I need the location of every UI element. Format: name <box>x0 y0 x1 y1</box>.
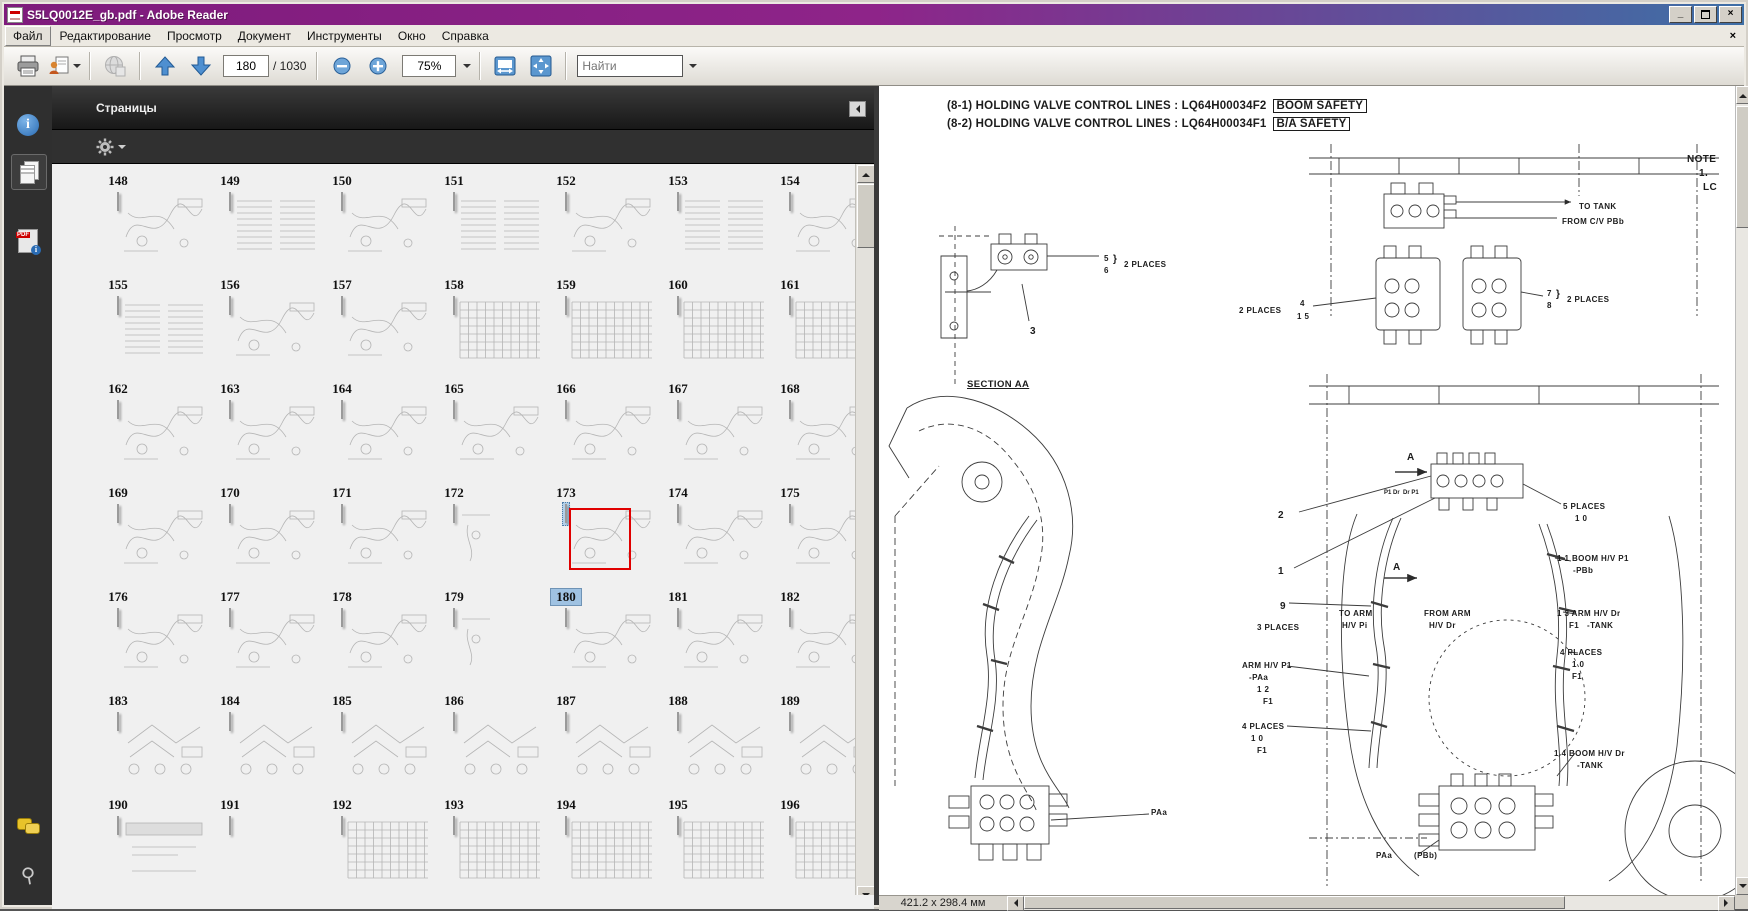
down-arrow-icon <box>190 55 212 77</box>
panel-scroll-up-button[interactable] <box>857 165 875 183</box>
menu-item-1[interactable]: Редактирование <box>53 27 158 45</box>
page-thumbnail[interactable] <box>450 710 458 734</box>
menu-bar-items: ФайлРедактированиеПросмотрДокументИнстру… <box>4 26 497 46</box>
pages-panel: Страницы 1481491501511521531541551561571… <box>52 86 874 905</box>
collaborate-button-disabled[interactable] <box>98 50 132 82</box>
page-thumbnail-image <box>677 816 679 835</box>
search-dropdown-button[interactable] <box>683 56 699 76</box>
page-thumb-label-182[interactable]: 182 <box>775 589 805 605</box>
up-arrow-icon <box>154 55 176 77</box>
diagram-label-49: (PBb) <box>1414 851 1437 860</box>
page-thumbnail[interactable] <box>674 190 682 214</box>
page-thumbnail[interactable] <box>450 606 458 630</box>
page-thumb-label-188[interactable]: 188 <box>663 693 693 709</box>
thumb-row-6 <box>62 814 856 900</box>
page-thumbnail[interactable] <box>450 398 458 422</box>
page-thumbnail-image <box>677 712 679 731</box>
menu-item-6[interactable]: Справка <box>435 27 496 45</box>
page-thumb-label-180[interactable]: 180 <box>550 588 582 606</box>
page-thumbnail-image <box>789 816 791 835</box>
diagram-label-19: P1 Dr Dr P1 <box>1384 490 1419 497</box>
diagram-label-23: 1 <box>1278 566 1284 578</box>
page-thumb-label-171[interactable]: 171 <box>327 485 357 501</box>
page-thumb-label-169[interactable]: 169 <box>103 485 133 501</box>
page-thumbnail-image <box>789 504 791 523</box>
share-document-icon <box>48 55 70 77</box>
diagram-label-34: F1 -TANK <box>1569 621 1613 630</box>
page-thumb-label-148[interactable]: 148 <box>103 173 133 189</box>
page-thumbnail-image <box>677 608 679 627</box>
page-thumb-label-149[interactable]: 149 <box>215 173 245 189</box>
page-thumbnail[interactable] <box>674 814 682 838</box>
page-thumbnail-image <box>117 296 119 315</box>
page-thumbnail-image <box>117 816 119 835</box>
zoom-out-icon <box>332 56 352 76</box>
page-thumb-label-159[interactable]: 159 <box>551 277 581 293</box>
page-thumbnail-image <box>565 400 567 419</box>
diagram-label-44: F1 <box>1257 746 1267 755</box>
page-thumb-label-170[interactable]: 170 <box>215 485 245 501</box>
doc-hscrollbar-thumb[interactable] <box>1024 896 1565 909</box>
menu-item-3[interactable]: Документ <box>231 27 298 45</box>
page-thumbnail[interactable] <box>450 294 458 318</box>
page-thumbnail[interactable] <box>226 294 234 318</box>
page-thumbnail[interactable] <box>338 502 346 526</box>
page-thumbnail[interactable] <box>562 814 570 838</box>
page-thumbnail[interactable] <box>114 398 122 422</box>
diagram-label-2: LC <box>1703 182 1717 194</box>
page-thumbnail-image <box>229 712 231 731</box>
zoom-out-button[interactable] <box>325 50 359 82</box>
zoom-level-input[interactable]: 75% <box>402 55 456 77</box>
page-thumbnail[interactable] <box>338 294 346 318</box>
page-thumbnail-image <box>677 192 679 211</box>
page-thumbnail-image <box>341 504 343 523</box>
diagram-label-5: 5 <box>1104 254 1109 263</box>
page-thumbnail[interactable] <box>226 814 234 838</box>
page-thumbnail[interactable] <box>674 710 682 734</box>
page-thumbnail[interactable] <box>786 710 794 734</box>
diagram-label-18: A <box>1407 452 1415 464</box>
page-thumb-label-181[interactable]: 181 <box>663 589 693 605</box>
thumb-label-row-0: 148149150151152153154 <box>62 172 856 190</box>
page-thumb-label-178[interactable]: 178 <box>327 589 357 605</box>
page-thumb-label-193[interactable]: 193 <box>439 797 469 813</box>
attachments-button[interactable]: ⚲ <box>11 858 45 892</box>
doc-scrollbar-thumb[interactable] <box>1736 106 1748 228</box>
diagram-label-30: H/V Pi <box>1342 621 1368 630</box>
page-thumb-label-163[interactable]: 163 <box>215 381 245 397</box>
thumb-row-2 <box>62 398 856 484</box>
panel-scrollbar[interactable] <box>855 164 874 905</box>
page-thumbnail[interactable] <box>562 710 570 734</box>
comments-icon <box>17 818 39 836</box>
page-thumb-label-157[interactable]: 157 <box>327 277 357 293</box>
pages-panel-title: Страницы <box>96 101 157 115</box>
info-icon: i <box>17 114 39 136</box>
page-thumb-label-194[interactable]: 194 <box>551 797 581 813</box>
page-thumbnail[interactable] <box>562 294 570 318</box>
panel-scrollbar-thumb[interactable] <box>857 184 875 248</box>
page-thumbnail-selected[interactable] <box>562 502 570 526</box>
search-input[interactable] <box>577 55 683 77</box>
diagram-label-9: 7 <box>1547 289 1552 298</box>
doc-scroll-right-button[interactable] <box>1718 896 1735 911</box>
page-thumbnail[interactable] <box>338 190 346 214</box>
thumb-row-4 <box>62 606 856 692</box>
comments-panel-button[interactable] <box>11 810 45 844</box>
doc-scroll-up-button[interactable] <box>1736 86 1748 104</box>
page-thumb-label-151[interactable]: 151 <box>439 173 469 189</box>
thumb-label-row-3: 169170171172173174175 <box>62 484 856 502</box>
menu-item-4[interactable]: Инструменты <box>300 27 389 45</box>
page-thumb-label-152[interactable]: 152 <box>551 173 581 189</box>
page-thumbnail-image <box>453 192 455 211</box>
page-thumbnail-image <box>565 296 567 315</box>
fit-width-button[interactable] <box>488 50 522 82</box>
thumb-row-0 <box>62 190 856 276</box>
page-thumb-label-189[interactable]: 189 <box>775 693 805 709</box>
previous-page-button[interactable] <box>148 50 182 82</box>
diagram-label-17: SECTION AA <box>967 380 1029 391</box>
minimize-button[interactable]: _ <box>1669 6 1692 23</box>
diagram-label-35: 4 PLACES <box>1560 648 1602 657</box>
page-thumbnail-image <box>789 608 791 627</box>
page-thumb-label-176[interactable]: 176 <box>103 589 133 605</box>
page-thumbnail[interactable] <box>226 190 234 214</box>
page-size-label: 421.2 x 298.4 мм <box>879 897 1007 909</box>
page-thumbnail-image <box>565 712 567 731</box>
diagram-label-42: 4 PLACES <box>1242 722 1284 731</box>
panel-bottom-strip <box>52 895 874 909</box>
page-thumb-label-164[interactable]: 164 <box>327 381 357 397</box>
collapse-panel-button[interactable] <box>849 101 866 117</box>
fit-width-icon <box>493 54 517 78</box>
page-thumb-label-173[interactable]: 173 <box>551 485 581 501</box>
page-thumbnail-image <box>341 296 343 315</box>
page-thumbnail-image <box>117 712 119 731</box>
page-thumbnail-image <box>789 192 791 211</box>
page-thumbnail[interactable] <box>226 606 234 630</box>
thumb-row-1 <box>62 294 856 380</box>
panel-options-dropdown-arrow <box>118 145 126 153</box>
page-thumb-label-160[interactable]: 160 <box>663 277 693 293</box>
pages-panel-button[interactable] <box>11 154 47 190</box>
page-thumbnail[interactable] <box>226 710 234 734</box>
how-to-button[interactable]: i <box>11 108 45 142</box>
page-thumbnail-image <box>341 192 343 211</box>
diagram-label-45: 1 4 BOOM H/V Dr <box>1554 749 1625 758</box>
navigation-rail: i ⚲ <box>4 86 53 905</box>
window-title: S5LQ0012E_gb.pdf - Adobe Reader <box>27 8 1669 22</box>
page-thumb-label-186[interactable]: 186 <box>439 693 469 709</box>
page-thumbnail-image <box>229 296 231 315</box>
adobe-reader-app-icon <box>7 7 23 23</box>
page-thumbnail[interactable] <box>562 398 570 422</box>
document-vertical-scrollbar[interactable] <box>1735 86 1748 895</box>
page-thumbnail[interactable] <box>114 294 122 318</box>
page-thumbnail-image <box>229 504 231 523</box>
diagram-label-29: TO ARM <box>1339 609 1373 618</box>
page-thumbnail[interactable] <box>338 710 346 734</box>
page-thumb-label-174[interactable]: 174 <box>663 485 693 501</box>
printer-icon <box>16 55 40 77</box>
diagram-label-33: 1 3 ARM H/V Dr <box>1557 609 1621 618</box>
diagram-label-47: PAa <box>1151 808 1167 817</box>
title-bar: S5LQ0012E_gb.pdf - Adobe Reader _ × <box>4 4 1744 25</box>
page-thumbnail-image <box>453 608 455 627</box>
zoom-in-icon <box>368 56 388 76</box>
page-thumbnail-image <box>229 192 231 211</box>
page-thumbnail-image <box>117 400 119 419</box>
page-thumbnail[interactable] <box>674 502 682 526</box>
page-thumbnail[interactable] <box>786 294 794 318</box>
globe-icon <box>103 54 127 78</box>
thumb-row-3 <box>62 502 856 588</box>
page-thumbnail-image <box>341 400 343 419</box>
thumb-label-row-4: 176177178179180181182 <box>62 588 856 606</box>
page-thumbnail-image <box>229 400 231 419</box>
diagram-label-41: F1 <box>1263 697 1273 706</box>
menu-item-2[interactable]: Просмотр <box>160 27 229 45</box>
page-thumb-label-191[interactable]: 191 <box>215 797 245 813</box>
diagram-label-14: 4 <box>1300 299 1305 308</box>
page-thumbnail-image <box>229 816 231 835</box>
page-thumb-label-161[interactable]: 161 <box>775 277 805 293</box>
page-thumbnail-image <box>453 712 455 731</box>
page-thumbnail[interactable] <box>450 814 458 838</box>
page-thumbnail[interactable] <box>114 502 122 526</box>
diagram-label-0: NOTE <box>1687 154 1716 166</box>
page-thumb-label-155[interactable]: 155 <box>103 277 133 293</box>
diagram-label-46: -TANK <box>1577 761 1603 770</box>
page-thumbnail-image <box>789 400 791 419</box>
menu-item-0[interactable]: Файл <box>5 26 51 46</box>
page-thumb-label-167[interactable]: 167 <box>663 381 693 397</box>
page-thumbnail-image <box>341 712 343 731</box>
page-thumb-label-185[interactable]: 185 <box>327 693 357 709</box>
page-thumbnail-image <box>789 712 791 731</box>
page-thumbnail[interactable] <box>674 294 682 318</box>
diagram-label-38: ARM H/V P1 <box>1242 661 1292 670</box>
menu-bar: ФайлРедактированиеПросмотрДокументИнстру… <box>4 25 1744 47</box>
page-thumb-label-172[interactable]: 172 <box>439 485 469 501</box>
document-pane[interactable]: (8-1) HOLDING VALVE CONTROL LINES : LQ64… <box>879 86 1735 895</box>
zoom-in-button[interactable] <box>361 50 395 82</box>
page-thumbnail-image <box>453 504 455 523</box>
page-thumbnail[interactable] <box>562 606 570 630</box>
thumb-row-5 <box>62 710 856 796</box>
diagram-label-7: } <box>1113 254 1117 266</box>
page-thumbnail[interactable] <box>114 190 122 214</box>
page-thumbnail[interactable] <box>450 190 458 214</box>
page-thumbnail-image <box>117 192 119 211</box>
fit-page-icon <box>529 54 553 78</box>
page-thumb-label-184[interactable]: 184 <box>215 693 245 709</box>
page-thumbnail[interactable] <box>786 606 794 630</box>
page-thumbnail[interactable] <box>338 398 346 422</box>
diagram-label-28: 3 PLACES <box>1257 623 1299 632</box>
scrollbar-corner <box>1735 895 1748 909</box>
thumb-label-row-6: 190191192193194195196 <box>62 796 856 814</box>
page-thumb-label-156[interactable]: 156 <box>215 277 245 293</box>
page-thumbnail[interactable] <box>450 502 458 526</box>
document-status-bar: 421.2 x 298.4 мм <box>879 895 1735 910</box>
paperclip-icon: ⚲ <box>19 862 38 888</box>
thumb-label-row-2: 162163164165166167168 <box>62 380 856 398</box>
diagram-label-48: PAa <box>1376 851 1392 860</box>
diagram-label-24: A <box>1393 562 1401 574</box>
diagram-label-40: 1 2 <box>1257 685 1269 694</box>
page-thumb-label-177[interactable]: 177 <box>215 589 245 605</box>
page-number-input[interactable]: 180 <box>223 55 269 77</box>
page-thumbnail-image <box>229 608 231 627</box>
page-total-label: / 1030 <box>273 59 306 73</box>
page-thumbnail-image <box>117 504 119 523</box>
fit-page-button[interactable] <box>524 50 558 82</box>
collapse-left-icon <box>852 105 860 113</box>
page-thumb-label-166[interactable]: 166 <box>551 381 581 397</box>
zoom-dropdown-button[interactable] <box>457 55 473 77</box>
diagram-label-8: 2 PLACES <box>1124 260 1166 269</box>
attachments-panel-button[interactable] <box>11 224 45 258</box>
pdf-info-icon <box>18 229 38 253</box>
page-thumbnail[interactable] <box>786 814 794 838</box>
page-thumb-label-175[interactable]: 175 <box>775 485 805 501</box>
page-thumbnail[interactable] <box>562 190 570 214</box>
page-thumbnail-image <box>565 504 567 523</box>
page-thumbnail[interactable] <box>338 606 346 630</box>
diagram-label-39: -PAa <box>1249 673 1268 682</box>
diagram-label-3: TO TANK <box>1579 202 1617 211</box>
thumb-label-row-5: 183184185186187188189 <box>62 692 856 710</box>
diagram-label-11: } <box>1556 289 1560 301</box>
diagram-label-1: 1. <box>1699 168 1708 180</box>
page-thumb-label-187[interactable]: 187 <box>551 693 581 709</box>
diagram-label-21: 1 0 <box>1575 514 1587 523</box>
page-thumb-label-150[interactable]: 150 <box>327 173 357 189</box>
next-page-button[interactable] <box>184 50 218 82</box>
diagram-label-10: 8 <box>1547 301 1552 310</box>
page-thumbnail-image <box>341 608 343 627</box>
diagram-label-37: F1 <box>1572 672 1582 681</box>
page-thumbnail-image <box>565 192 567 211</box>
diagram-label-20: 5 PLACES <box>1563 502 1605 511</box>
pages-panel-header: Страницы <box>52 86 874 130</box>
page-thumbnail[interactable] <box>674 398 682 422</box>
page-thumbnail[interactable] <box>786 398 794 422</box>
page-thumbnail-image <box>117 608 119 627</box>
diagram-label-6: 6 <box>1104 266 1109 275</box>
page-thumb-label-153[interactable]: 153 <box>663 173 693 189</box>
page-thumb-label-168[interactable]: 168 <box>775 381 805 397</box>
diagram-label-32: H/V Dr <box>1429 621 1456 630</box>
page-thumbnail-image <box>677 296 679 315</box>
page-thumb-label-183[interactable]: 183 <box>103 693 133 709</box>
doc-scroll-left-button[interactable] <box>1007 896 1024 911</box>
share-document-button[interactable] <box>47 50 82 82</box>
page-thumbnail[interactable] <box>786 190 794 214</box>
page-thumbnail-image <box>677 504 679 523</box>
application-window: S5LQ0012E_gb.pdf - Adobe Reader _ × Файл… <box>0 0 1748 909</box>
menu-item-5[interactable]: Окно <box>391 27 433 45</box>
document-close-icon[interactable]: × <box>1730 30 1736 42</box>
diagram-label-12: 2 PLACES <box>1567 295 1609 304</box>
document-horizontal-scrollbar[interactable] <box>1024 896 1718 910</box>
thumb-label-row-1: 155156157158159160161 <box>62 276 856 294</box>
page-thumbnail-image <box>341 816 343 835</box>
page-thumb-label-158[interactable]: 158 <box>439 277 469 293</box>
page-thumbnail-image <box>453 816 455 835</box>
thumbnail-grid: 1481491501511521531541551561571581591601… <box>52 164 856 905</box>
page-thumb-label-165[interactable]: 165 <box>439 381 469 397</box>
page-thumbnail[interactable] <box>114 710 122 734</box>
diagram-label-26: -PBb <box>1573 566 1593 575</box>
page-thumb-label-162[interactable]: 162 <box>103 381 133 397</box>
pages-panel-toolbar <box>52 130 874 164</box>
diagram-label-43: 1 0 <box>1251 734 1263 743</box>
page-thumb-label-195[interactable]: 195 <box>663 797 693 813</box>
page-thumb-label-154[interactable]: 154 <box>775 173 805 189</box>
page-thumbnail-image <box>565 816 567 835</box>
gear-icon <box>96 138 114 156</box>
diagram-label-25: 1 1 BOOM H/V P1 <box>1557 554 1629 563</box>
page-thumb-label-179[interactable]: 179 <box>439 589 469 605</box>
diagram-label-13: 2 PLACES <box>1239 306 1281 315</box>
close-button[interactable]: × <box>1719 6 1742 23</box>
diagram-label-16: 3 <box>1030 326 1036 338</box>
page-thumbnail-image <box>453 296 455 315</box>
diagram-label-15: 1 5 <box>1297 312 1309 321</box>
page-thumb-label-196[interactable]: 196 <box>775 797 805 813</box>
restore-button[interactable] <box>1694 6 1717 23</box>
page-thumbnail-image <box>677 400 679 419</box>
page-thumbnail-image <box>565 608 567 627</box>
diagram-label-31: FROM ARM <box>1424 609 1471 618</box>
page-thumbnail[interactable] <box>674 606 682 630</box>
page-thumbnail[interactable] <box>226 398 234 422</box>
page-thumbnail-image <box>789 296 791 315</box>
page-thumbnail[interactable] <box>338 814 346 838</box>
main-toolbar: 180 / 1030 75% <box>4 47 1744 86</box>
pages-icon <box>20 161 38 183</box>
doc-scroll-down-button[interactable] <box>1736 877 1748 895</box>
page-thumb-label-192[interactable]: 192 <box>327 797 357 813</box>
diagram-label-27: 9 <box>1280 601 1286 613</box>
page-thumbnail[interactable] <box>114 606 122 630</box>
print-button[interactable] <box>11 50 45 82</box>
diagram-label-36: 1 0 <box>1572 660 1584 669</box>
page-thumbnail-image <box>453 400 455 419</box>
page-thumbnail[interactable] <box>226 502 234 526</box>
page-thumb-label-190[interactable]: 190 <box>103 797 133 813</box>
page-thumbnail[interactable] <box>114 814 122 838</box>
share-dropdown-arrow[interactable] <box>73 64 81 72</box>
diagram-label-4: FROM C/V PBb <box>1562 217 1624 226</box>
diagram-label-22: 2 <box>1278 510 1284 522</box>
panel-options-button[interactable] <box>96 138 126 156</box>
page-thumbnail[interactable] <box>786 502 794 526</box>
